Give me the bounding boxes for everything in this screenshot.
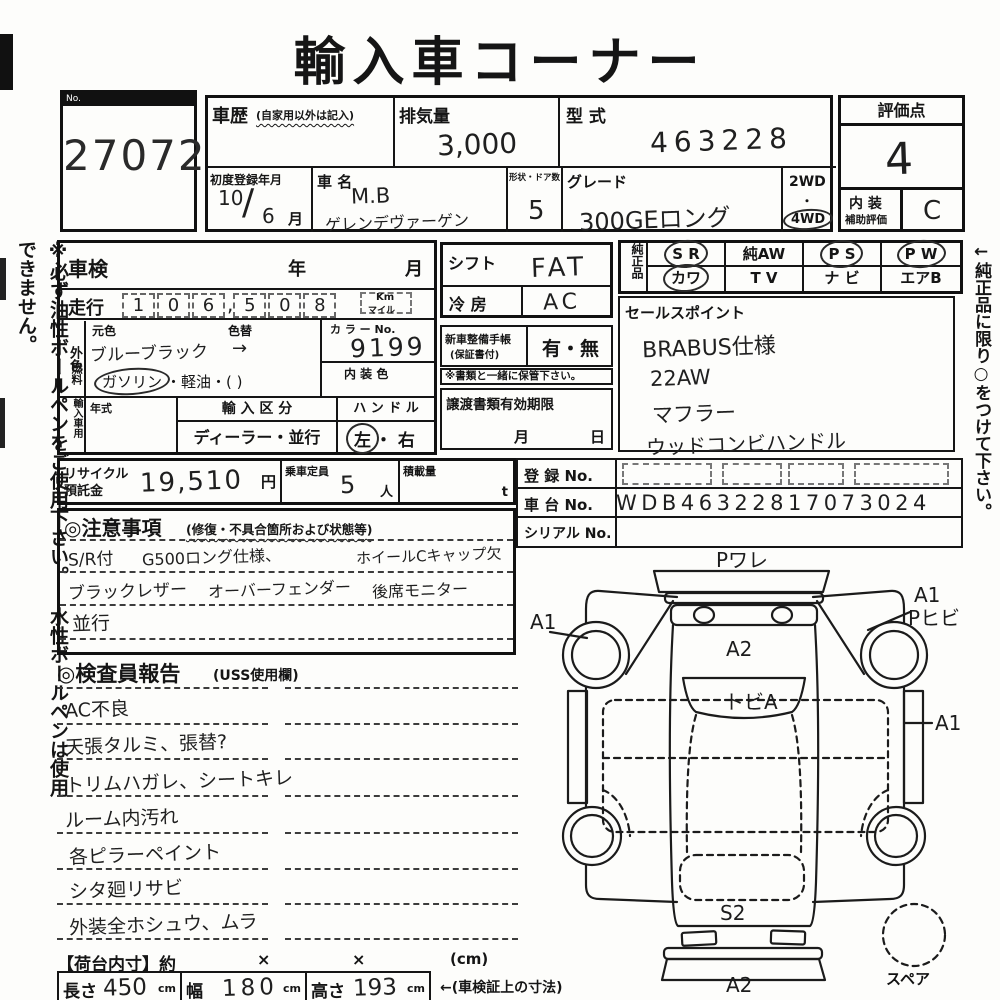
mileage-digit: 8 <box>314 295 325 316</box>
report-rule <box>285 903 518 905</box>
car-name-label: 車 名 <box>317 171 352 192</box>
fuel-label: 燃料 <box>60 363 86 398</box>
color-no-value: 9199 <box>350 332 427 364</box>
genuine-item-ps: P S <box>804 243 882 267</box>
width-value: 180 <box>222 974 279 1000</box>
headlight-right <box>772 607 792 623</box>
load-ton: t <box>502 485 508 500</box>
shift-label: シフト <box>448 250 496 274</box>
inspector-title: ◎検査員報告 <box>57 658 180 688</box>
interior-score-row: 内 装 補助評価 C <box>841 187 962 229</box>
mileage-row: 走行 106,508 Km マイル <box>60 290 434 320</box>
report-line: 各ピラーペイント <box>69 837 222 869</box>
mileage-unit-box: Km マイル <box>360 292 412 314</box>
mileage-label: 走行 <box>68 294 104 320</box>
genuine-item-tv: T V <box>726 267 804 291</box>
shift-value: FAT <box>530 252 587 284</box>
shaken-year-label: 年 <box>288 255 306 281</box>
rear-window-shape <box>680 855 804 900</box>
techo-label-1: 新車整備手帳 <box>445 331 511 347</box>
sales-point-line: マフラー <box>652 397 737 430</box>
color-change-label: 色替 <box>228 322 252 339</box>
drive-cell: 2WD ・ 4WD <box>783 168 830 232</box>
auction-sheet: 輸入車コーナー No. 27072 車歴 (自家用以外は記入) 排気量 3,00… <box>0 0 1000 1000</box>
mileage-digits: 106,508 <box>122 292 338 318</box>
body-outline <box>670 625 818 926</box>
genuine-tv-label: T V <box>750 269 777 287</box>
orig-color-label: 元色 <box>92 322 116 339</box>
wheel-front-right-inner <box>870 631 918 679</box>
report-line: トリムハガレ、シートキレ <box>65 763 294 798</box>
model-code-label: 型 式 <box>566 102 606 127</box>
exterior-color-row: 外色 元色 ブルーブラック 色替 → カ ラ ー No. 9199 <box>60 320 434 363</box>
damage-front-bumper: Pワレ <box>716 552 768 572</box>
page-title: 輸入車コーナー <box>250 20 750 95</box>
capacity-label: 乗車定員 <box>285 463 329 479</box>
inspection-table: 車検 年 月 走行 106,508 Km マイル 外色 元色 ブルーブラック 色… <box>57 240 437 455</box>
headlight-left <box>694 607 714 623</box>
front-grille-bar <box>665 593 823 603</box>
cautions-title: ◎注意事項 <box>64 512 161 541</box>
shaken-month-label: 月 <box>405 255 423 281</box>
reg-no-box <box>854 463 949 485</box>
fuel-row: 燃料 ガソリン・軽油・( ) 内 装 色 <box>60 363 434 398</box>
genuine-grid: 純正品 S R 純AW P S P W カワ T V ナ ビ エアB <box>618 240 963 294</box>
floor-outline <box>603 700 888 832</box>
serial-no-row: シリアル No. <box>518 518 961 546</box>
registration-table: 登 録 No. 車 台 No. WDB46322817073024 シリアル N… <box>516 458 963 548</box>
sales-point-line: BRABUS仕様 <box>641 328 776 365</box>
recycle-cell: リサイクル 預託金 19,510 円 <box>60 461 282 502</box>
width-unit: cm <box>283 982 301 995</box>
damage-windshield: トビA <box>724 690 778 714</box>
right-vertical-note: ←純正品に限り○をつけて下さい。 <box>966 242 996 622</box>
chassis-no-row: 車 台 No. WDB46322817073024 <box>518 489 961 518</box>
report-rule <box>285 723 518 725</box>
scan-artifact <box>0 258 6 300</box>
year-type-cell: 年式 <box>86 398 178 452</box>
inspector-subtitle: (USS使用欄) <box>213 665 299 685</box>
height-unit: cm <box>407 982 425 995</box>
recycle-yen: 円 <box>261 471 276 492</box>
fuel-options: ガソリン・軽油・( ) <box>98 371 243 392</box>
handle-left: 左 <box>350 426 375 451</box>
doors-label: 形状・ドア数 <box>509 171 560 183</box>
capacity-value: 5 <box>340 471 356 500</box>
displacement-label: 排気量 <box>399 102 450 127</box>
report-line: AC不良 <box>65 694 130 723</box>
color-change-value: → <box>232 338 247 359</box>
cautions-box: ◎注意事項 (修復・不具合箇所および状態等) S/R付 G500ロング仕様、 ホ… <box>57 508 516 655</box>
drive-dot: ・ <box>801 192 813 209</box>
right-pillar-fold <box>817 601 864 674</box>
caution-rule <box>60 571 513 573</box>
import-class-value: ディーラー・並行 <box>178 424 336 448</box>
displacement-value: 3,000 <box>436 127 517 163</box>
drive-4wd: 4WD <box>787 212 829 227</box>
mileage-digit: 1 <box>133 295 144 316</box>
car-name-line1: M.B <box>351 183 391 208</box>
techo-note: ※書類と一緒に保管下さい。 <box>440 368 613 385</box>
cargo-strip: 【荷台内寸】約 × × (cm) <box>57 948 517 972</box>
load-cell: 積載量 t <box>400 461 513 502</box>
interior-score-label-cell: 内 装 補助評価 <box>841 190 903 232</box>
car-name-line2: ゲレンデヴァーゲン <box>325 206 470 235</box>
damage-diagram: Pワレ A2 トビA A1 A1 Pヒビ A1 S2 A2 スペア <box>530 552 960 994</box>
score-value: 4 <box>884 134 914 186</box>
right-rocker <box>904 691 923 803</box>
displacement-cell: 排気量 3,000 <box>395 98 560 168</box>
capacity-nin: 人 <box>380 481 393 500</box>
caution-note: オーバーフェンダー <box>208 574 352 603</box>
caution-note: 後席モニター <box>372 575 469 602</box>
length-value: 450 <box>103 974 148 1000</box>
report-rule <box>285 938 518 940</box>
damage-left-front: A1 <box>530 610 556 634</box>
import-class-label: 輸 入 区 分 <box>178 398 336 422</box>
cargo-x2: × <box>352 950 365 969</box>
shaken-row: 車検 年 月 <box>60 243 434 290</box>
fuel-gasoline: ガソリン <box>98 371 166 392</box>
first-reg-month-unit: 月 <box>288 208 303 229</box>
reg-no-box <box>622 463 712 485</box>
report-rule <box>57 687 268 689</box>
width-label: 幅 <box>186 977 203 1000</box>
shift-box: シフト FAT 冷 房 AC <box>440 242 613 318</box>
first-reg-month: 6 <box>262 204 275 228</box>
first-reg-slash: / <box>242 182 254 223</box>
left-pillar-fold <box>626 601 673 674</box>
mileage-digit: 6 <box>203 295 214 316</box>
km-label: Km <box>376 292 394 303</box>
front-bumper-shape <box>654 571 829 592</box>
reg-label-divider <box>615 460 617 546</box>
width-box: 幅 180 cm <box>182 971 307 1000</box>
transfer-day: 日 <box>590 426 605 447</box>
history-label: 車歴 <box>212 102 248 128</box>
spare-label: スペア <box>886 970 930 988</box>
rear-bumper-bar <box>664 948 822 959</box>
length-label: 長さ <box>63 977 97 1000</box>
import-row: 輸入車用 年式 輸 入 区 分 ディーラー・並行 ハ ン ド ル 左・ 右 <box>60 398 434 452</box>
handle-value: 左・ 右 <box>350 426 415 451</box>
fuel-rest: ・軽油・( ) <box>166 373 242 391</box>
caution-note: S/R付 <box>68 544 114 571</box>
report-line: 天張タルミ、張替? <box>65 727 228 760</box>
techo-box: 新車整備手帳 (保証書付) 有・無 <box>440 325 613 367</box>
genuine-item-airbag: エアB <box>882 267 960 291</box>
orig-color-value: ブルーブラック <box>90 337 209 366</box>
length-unit: cm <box>158 982 176 995</box>
genuine-aw-label: 純AW <box>743 245 785 263</box>
caution-rule <box>60 604 513 606</box>
history-cell: 車歴 (自家用以外は記入) <box>208 98 395 168</box>
length-box: 長さ 450 cm <box>57 971 182 1000</box>
cautions-subtitle: (修復・不具合箇所および状態等) <box>186 519 372 538</box>
grade-cell: グレード 300GEロング <box>563 168 783 232</box>
genuine-pw-circle: P W <box>901 243 942 265</box>
sales-points-box: セールスポイント BRABUS仕様 22AW マフラー ウッドコンビハンドル <box>618 296 955 452</box>
reg-no-box <box>788 463 844 485</box>
caution-note: G500ロング仕様、 <box>142 542 282 571</box>
spare-tire-circle <box>883 904 945 966</box>
cargo-cm: (cm) <box>450 950 488 968</box>
genuine-navi-label: ナ ビ <box>824 269 859 287</box>
caution-rule <box>60 539 513 541</box>
genuine-sr-circle: S R <box>668 243 704 265</box>
taillight-right <box>771 930 805 944</box>
doors-cell: 形状・ドア数 5 <box>508 168 563 232</box>
caution-rule <box>60 638 513 640</box>
genuine-item-pw: P W <box>882 243 960 267</box>
reg-no-row: 登 録 No. <box>518 460 961 489</box>
handle-cell: ハ ン ド ル 左・ 右 <box>338 398 434 452</box>
wheel-front-left-inner <box>572 631 620 679</box>
score-label: 評価点 <box>841 98 962 126</box>
report-rule <box>57 832 268 834</box>
report-line: ルーム内汚れ <box>65 802 179 833</box>
interior-label-1: 内 装 <box>849 193 882 213</box>
top-table: 車歴 (自家用以外は記入) 排気量 3,000 型 式 463228 初度登録年… <box>205 95 833 232</box>
techo-label-2: (保証書付) <box>450 346 499 361</box>
cargo-x1: × <box>257 950 270 969</box>
techo-value: 有・無 <box>542 334 599 361</box>
height-box: 高さ 193 cm <box>307 971 431 1000</box>
report-rule <box>285 687 518 689</box>
interior-color-label: 内 装 色 <box>344 365 388 382</box>
damage-right-front-2: Pヒビ <box>908 606 960 630</box>
damage-right-side: A1 <box>935 711 960 735</box>
import-class-cell: 輸 入 区 分 ディーラー・並行 <box>178 398 338 452</box>
report-rule <box>285 832 518 834</box>
wheel-rear-right-inner <box>875 815 917 857</box>
model-code-value: 463228 <box>649 122 793 160</box>
interior-score-value: C <box>923 196 941 226</box>
ac-label: 冷 房 <box>443 287 523 317</box>
reg-no-box <box>722 463 782 485</box>
grade-label: グレード <box>567 171 627 192</box>
year-type-label: 年式 <box>90 400 112 416</box>
mileage-digit: 0 <box>279 295 290 316</box>
sales-point-line: ウッドコンビハンドル <box>646 425 847 461</box>
damage-hood: A2 <box>726 637 752 661</box>
taillight-left <box>682 931 717 946</box>
damage-right-front: A1 <box>914 583 940 607</box>
lot-no-bar: No. <box>63 93 194 106</box>
lot-number: 27072 <box>63 131 194 180</box>
doors-value: 5 <box>528 196 545 226</box>
scan-artifact <box>0 398 5 448</box>
recycle-label-2: 預託金 <box>64 480 103 499</box>
transfer-month: 月 <box>514 426 529 447</box>
model-code-cell: 型 式 463228 <box>560 98 836 168</box>
handle-right: 右 <box>398 431 415 451</box>
interior-color-cell: 内 装 色 <box>320 363 434 398</box>
capacity-cell: 乗車定員 5 人 <box>282 461 400 502</box>
report-rule <box>57 723 268 725</box>
import-label: 輸入車用 <box>60 398 86 452</box>
grade-value: 300GEロング <box>578 197 731 237</box>
recycle-value: 19,510 <box>140 465 244 499</box>
transfer-label: 譲渡書類有効期限 <box>446 393 554 413</box>
score-box: 評価点 4 内 装 補助評価 C <box>838 95 965 232</box>
serial-no-label: シリアル No. <box>524 523 611 543</box>
genuine-airbag-label: エアB <box>900 269 941 287</box>
report-rule <box>285 758 518 760</box>
first-reg-year: 10 <box>218 186 243 210</box>
inspector-report: ◎検査員報告 (USS使用欄) AC不良 天張タルミ、張替? トリムハガレ、シー… <box>55 658 520 948</box>
chassis-no-value: WDB46322817073024 <box>616 491 931 515</box>
recycle-row: リサイクル 預託金 19,510 円 乗車定員 5 人 積載量 t <box>57 458 516 505</box>
caution-note: ホイールCキャップ欠 <box>356 542 502 568</box>
mileage-digit: 0 <box>168 295 179 316</box>
wheel-rear-left-inner <box>571 815 613 857</box>
left-rocker <box>568 691 587 803</box>
caution-note: 並行 <box>72 608 111 636</box>
load-label: 積載量 <box>403 463 436 479</box>
shaken-label: 車検 <box>68 253 108 282</box>
color-no-cell: カ ラ ー No. 9199 <box>320 320 434 363</box>
caution-note: ブラックレザー <box>68 575 188 604</box>
damage-rear-bumper: A2 <box>726 973 752 994</box>
history-sub-label: (自家用以外は記入) <box>256 107 354 123</box>
report-line: 外装全ホシュウ、ムラ <box>69 907 258 941</box>
height-value: 193 <box>353 974 398 1000</box>
car-name-cell: 車 名 M.B ゲレンデヴァーゲン <box>313 168 508 232</box>
handle-label: ハ ン ド ル <box>338 398 434 422</box>
chassis-no-label: 車 台 No. <box>524 494 593 515</box>
interior-label-2: 補助評価 <box>845 212 887 227</box>
genuine-leather-circle: カワ <box>667 267 705 289</box>
lot-box: No. 27072 <box>60 90 197 232</box>
dimension-boxes: 長さ 450 cm 幅 180 cm 高さ 193 cm <box>57 971 433 1000</box>
damage-rear: S2 <box>720 901 745 925</box>
mile-label: マイル <box>368 303 395 316</box>
genuine-label: 純正品 <box>621 243 648 291</box>
reg-no-label: 登 録 No. <box>524 465 593 486</box>
genuine-item-leather: カワ <box>648 267 726 291</box>
report-rule <box>285 868 518 870</box>
sales-point-line: 22AW <box>650 365 712 391</box>
height-label: 高さ <box>311 977 345 1000</box>
drive-2wd: 2WD <box>789 174 826 190</box>
ac-value: AC <box>543 289 582 315</box>
genuine-item-navi: ナ ビ <box>804 267 882 291</box>
genuine-ps-circle: P S <box>824 243 859 265</box>
genuine-item-aw: 純AW <box>726 243 804 267</box>
scan-artifact <box>0 34 13 90</box>
mileage-digit: 5 <box>244 295 255 316</box>
transfer-box: 譲渡書類有効期限 月 日 <box>440 388 613 450</box>
techo-label-cell: 新車整備手帳 (保証書付) <box>442 327 528 365</box>
sales-points-label: セールスポイント <box>625 302 745 323</box>
ac-row: 冷 房 AC <box>443 285 610 315</box>
report-line: シタ廻リサビ <box>69 873 184 904</box>
report-rule <box>285 795 518 797</box>
first-reg-cell: 初度登録年月 10 / 6 月 <box>208 168 313 232</box>
